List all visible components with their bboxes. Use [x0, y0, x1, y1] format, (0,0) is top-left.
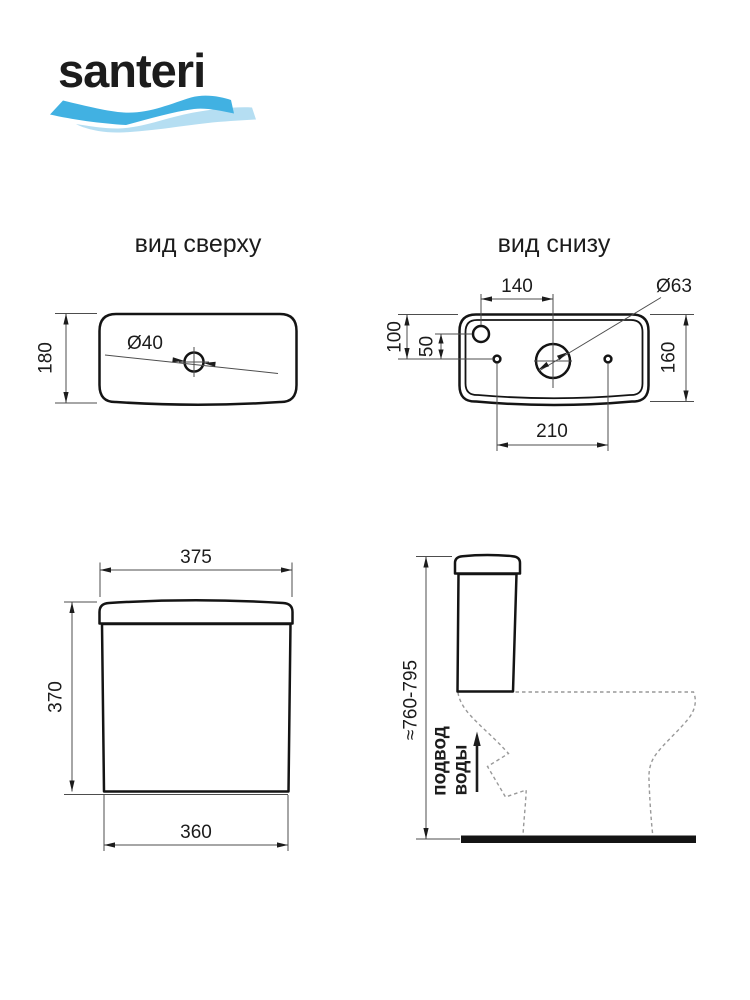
bolt-hole-right: [605, 356, 612, 363]
arrow-down: [69, 781, 74, 792]
inlet-hole: [473, 326, 489, 342]
water-supply-label-line2: воды: [451, 744, 472, 795]
water-supply-label-line1: подвод: [430, 726, 451, 796]
arrow-left: [100, 567, 111, 572]
dim-label-360: 360: [180, 822, 212, 843]
arrow-down: [683, 391, 688, 402]
side-view: ≈760-795 подвод воды: [401, 555, 697, 843]
dim-label-375: 375: [180, 547, 212, 568]
dim-label-210: 210: [536, 421, 568, 442]
arrow-down: [63, 392, 68, 403]
dim-label-50: 50: [417, 336, 438, 357]
front-body-outline: [102, 624, 291, 792]
front-lid-outline: [100, 600, 293, 623]
bottom-view: вид снизу 140 Ø63 100 50: [385, 230, 695, 451]
arrow-right: [277, 842, 288, 847]
arrow-up: [438, 334, 443, 344]
dim-label-180: 180: [36, 342, 57, 374]
dim-label-100: 100: [385, 321, 406, 353]
arrow-down: [438, 350, 443, 360]
brand-name: santeri: [58, 44, 205, 97]
arrow-up: [423, 557, 428, 568]
toilet-bowl-dashed-outline: [516, 692, 696, 836]
arrow-left: [497, 442, 508, 447]
top-view-title: вид сверху: [135, 230, 262, 258]
top-view: вид сверху Ø40 180: [36, 230, 297, 405]
drawing-canvas: santeri вид сверху Ø40 180 вид снизу: [0, 0, 750, 1000]
arrow-right: [542, 296, 553, 301]
water-supply-arrow-head: [473, 732, 480, 747]
arrow-right: [281, 567, 292, 572]
technical-drawing-page: santeri вид сверху Ø40 180 вид снизу: [0, 0, 750, 1000]
dim-label-370: 370: [46, 681, 67, 713]
dim-label-dia63: Ø63: [656, 276, 692, 297]
dim-label-dia40: Ø40: [127, 333, 163, 354]
arrow-up: [63, 314, 68, 325]
floor-line: [461, 836, 696, 844]
arrow-left: [481, 296, 492, 301]
brand-logo: santeri: [50, 44, 256, 133]
bottom-view-title: вид снизу: [498, 230, 611, 258]
dim-label-install-height: ≈760-795: [401, 660, 422, 740]
arrow-up: [69, 602, 74, 613]
arrow-down: [423, 828, 428, 839]
arrow-up: [683, 315, 688, 326]
bolt-hole-left: [494, 356, 501, 363]
side-body-outline: [458, 574, 517, 692]
dim-label-160: 160: [659, 342, 680, 374]
top-view-lid-outline: [100, 314, 297, 405]
dim-label-140: 140: [501, 276, 533, 297]
arrow-left: [104, 842, 115, 847]
front-view: 375 370 360: [46, 547, 293, 851]
side-lid-outline: [455, 555, 520, 574]
arrow-right: [597, 442, 608, 447]
